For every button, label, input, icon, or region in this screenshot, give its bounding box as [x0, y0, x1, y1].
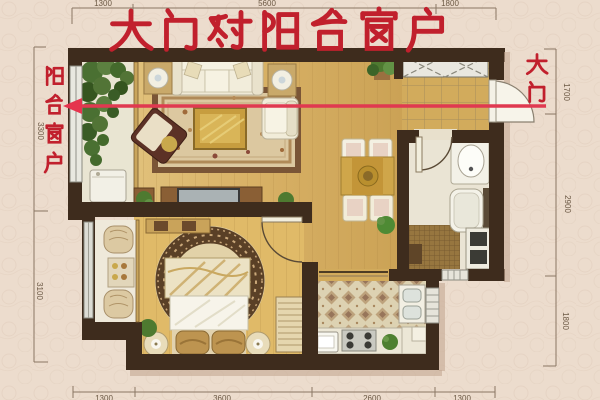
svg-text:3300: 3300	[36, 122, 45, 140]
svg-text:1300: 1300	[94, 0, 112, 8]
svg-text:3600: 3600	[213, 394, 231, 400]
svg-text:5600: 5600	[258, 0, 276, 8]
svg-text:1300: 1300	[95, 394, 113, 400]
svg-text:1800: 1800	[561, 312, 570, 330]
svg-text:1800: 1800	[441, 0, 459, 8]
svg-text:2900: 2900	[563, 195, 572, 213]
svg-text:1700: 1700	[562, 83, 571, 101]
svg-text:3100: 3100	[35, 282, 44, 300]
svg-text:2600: 2600	[363, 394, 381, 400]
svg-text:1300: 1300	[453, 394, 471, 400]
